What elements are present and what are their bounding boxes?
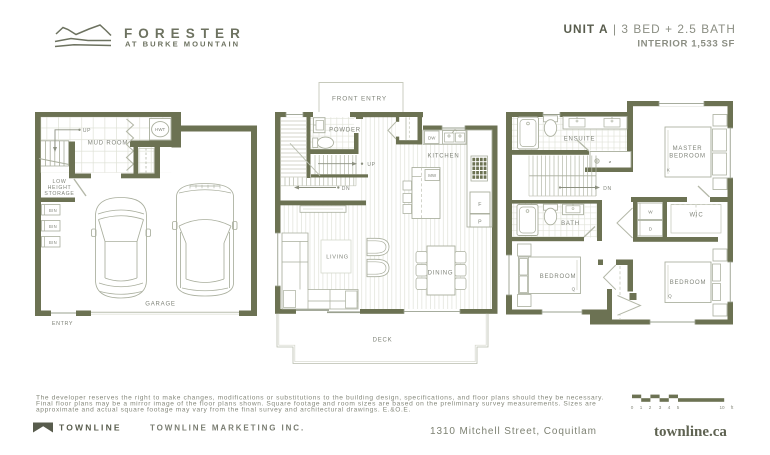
svg-text:MUD ROOM: MUD ROOM (88, 141, 128, 147)
svg-text:W: W (648, 210, 653, 215)
svg-text:DN: DN (342, 186, 350, 192)
svg-text:HWT: HWT (155, 127, 166, 132)
svg-text:UP: UP (367, 162, 375, 168)
svg-text:BIN: BIN (49, 208, 57, 213)
svg-text:FRONT ENTRY: FRONT ENTRY (332, 96, 387, 103)
svg-text:MW: MW (428, 173, 437, 178)
svg-text:UP: UP (83, 128, 91, 134)
svg-text:0: 0 (631, 405, 634, 410)
svg-text:4: 4 (668, 405, 671, 410)
svg-text:5: 5 (677, 405, 680, 410)
svg-text:LIVING: LIVING (326, 255, 349, 261)
svg-text:3: 3 (659, 405, 662, 410)
svg-text:BATH: BATH (561, 221, 580, 227)
svg-text:⌀: ⌀ (609, 159, 612, 164)
svg-text:TOWNLINE: TOWNLINE (59, 423, 122, 433)
svg-text:AT BURKE MOUNTAIN: AT BURKE MOUNTAIN (125, 40, 240, 49)
svg-text:DN: DN (603, 186, 611, 192)
svg-text:townline.ca: townline.ca (654, 424, 727, 440)
svg-text:ENTRY: ENTRY (52, 321, 73, 327)
svg-text:Q: Q (572, 287, 576, 292)
svg-text:1: 1 (640, 405, 643, 410)
svg-text:10: 10 (719, 405, 725, 410)
svg-text:approximate and actual square: approximate and actual square footage ma… (36, 407, 411, 414)
svg-text:WIC: WIC (689, 213, 703, 219)
svg-text:F: F (478, 202, 481, 208)
svg-text:MASTER: MASTER (673, 146, 703, 152)
svg-text:BEDROOM: BEDROOM (670, 280, 707, 286)
svg-text:D: D (649, 227, 653, 232)
svg-text:P: P (478, 220, 482, 226)
svg-text:BIN: BIN (49, 240, 57, 245)
svg-text:2: 2 (649, 405, 652, 410)
svg-text:DINING: DINING (428, 271, 454, 277)
svg-text:GARAGE: GARAGE (145, 302, 175, 308)
svg-text:BEDROOM: BEDROOM (669, 154, 706, 160)
svg-text:UNIT A | 3 BED + 2.5 BATH: UNIT A | 3 BED + 2.5 BATH (563, 22, 736, 36)
svg-text:BIN: BIN (49, 224, 57, 229)
svg-text:DECK: DECK (373, 338, 393, 344)
svg-text:DW: DW (428, 136, 436, 141)
svg-text:BEDROOM: BEDROOM (540, 274, 577, 280)
svg-text:KITCHEN: KITCHEN (428, 154, 460, 160)
svg-text:POWDER: POWDER (329, 128, 361, 134)
svg-text:INTERIOR 1,533 SF: INTERIOR 1,533 SF (637, 39, 735, 50)
svg-text:STORAGE: STORAGE (44, 191, 74, 197)
svg-text:1310 Mitchell Street, Coquitla: 1310 Mitchell Street, Coquitlam (430, 426, 597, 437)
svg-text:TOWNLINE MARKETING INC.: TOWNLINE MARKETING INC. (150, 424, 305, 433)
svg-text:Q: Q (668, 294, 672, 299)
